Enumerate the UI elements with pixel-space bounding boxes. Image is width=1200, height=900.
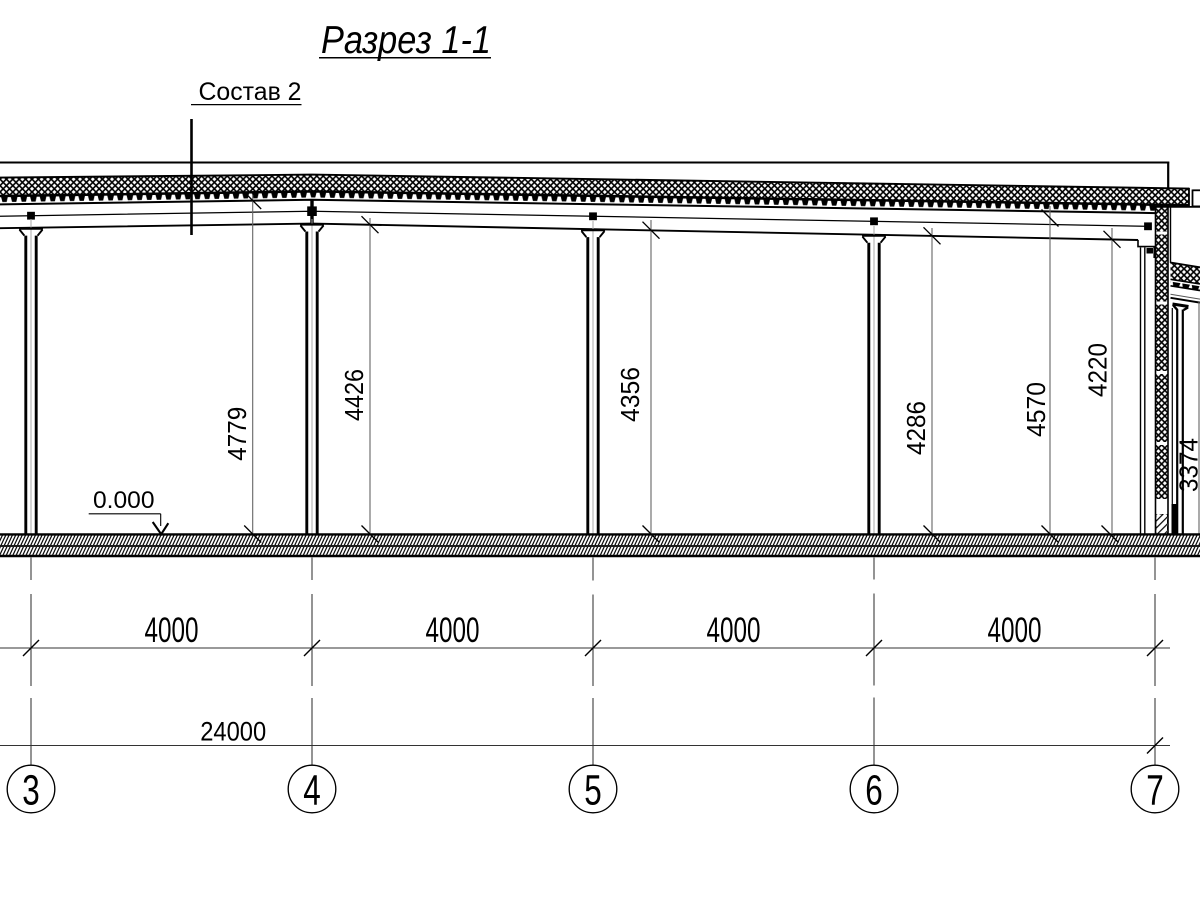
svg-text:4356: 4356 — [617, 367, 645, 422]
svg-text:4426: 4426 — [341, 369, 369, 421]
svg-text:Состав 2: Состав 2 — [199, 78, 302, 106]
svg-text:5: 5 — [584, 766, 602, 814]
svg-text:4286: 4286 — [903, 401, 931, 455]
svg-text:24000: 24000 — [200, 716, 266, 746]
svg-text:Разрез 1-1: Разрез 1-1 — [321, 19, 491, 62]
svg-text:4570: 4570 — [1023, 382, 1051, 437]
svg-text:4000: 4000 — [988, 611, 1042, 650]
svg-text:3: 3 — [22, 766, 40, 814]
svg-text:4000: 4000 — [145, 611, 199, 650]
svg-text:4000: 4000 — [707, 611, 761, 650]
svg-text:4: 4 — [303, 766, 321, 814]
svg-text:0.000: 0.000 — [93, 487, 155, 514]
svg-text:4220: 4220 — [1085, 343, 1113, 397]
svg-text:4000: 4000 — [426, 611, 480, 650]
svg-text:6: 6 — [865, 766, 883, 814]
svg-text:3374: 3374 — [1176, 438, 1200, 492]
svg-text:4779: 4779 — [224, 407, 252, 461]
svg-text:7: 7 — [1146, 766, 1164, 814]
